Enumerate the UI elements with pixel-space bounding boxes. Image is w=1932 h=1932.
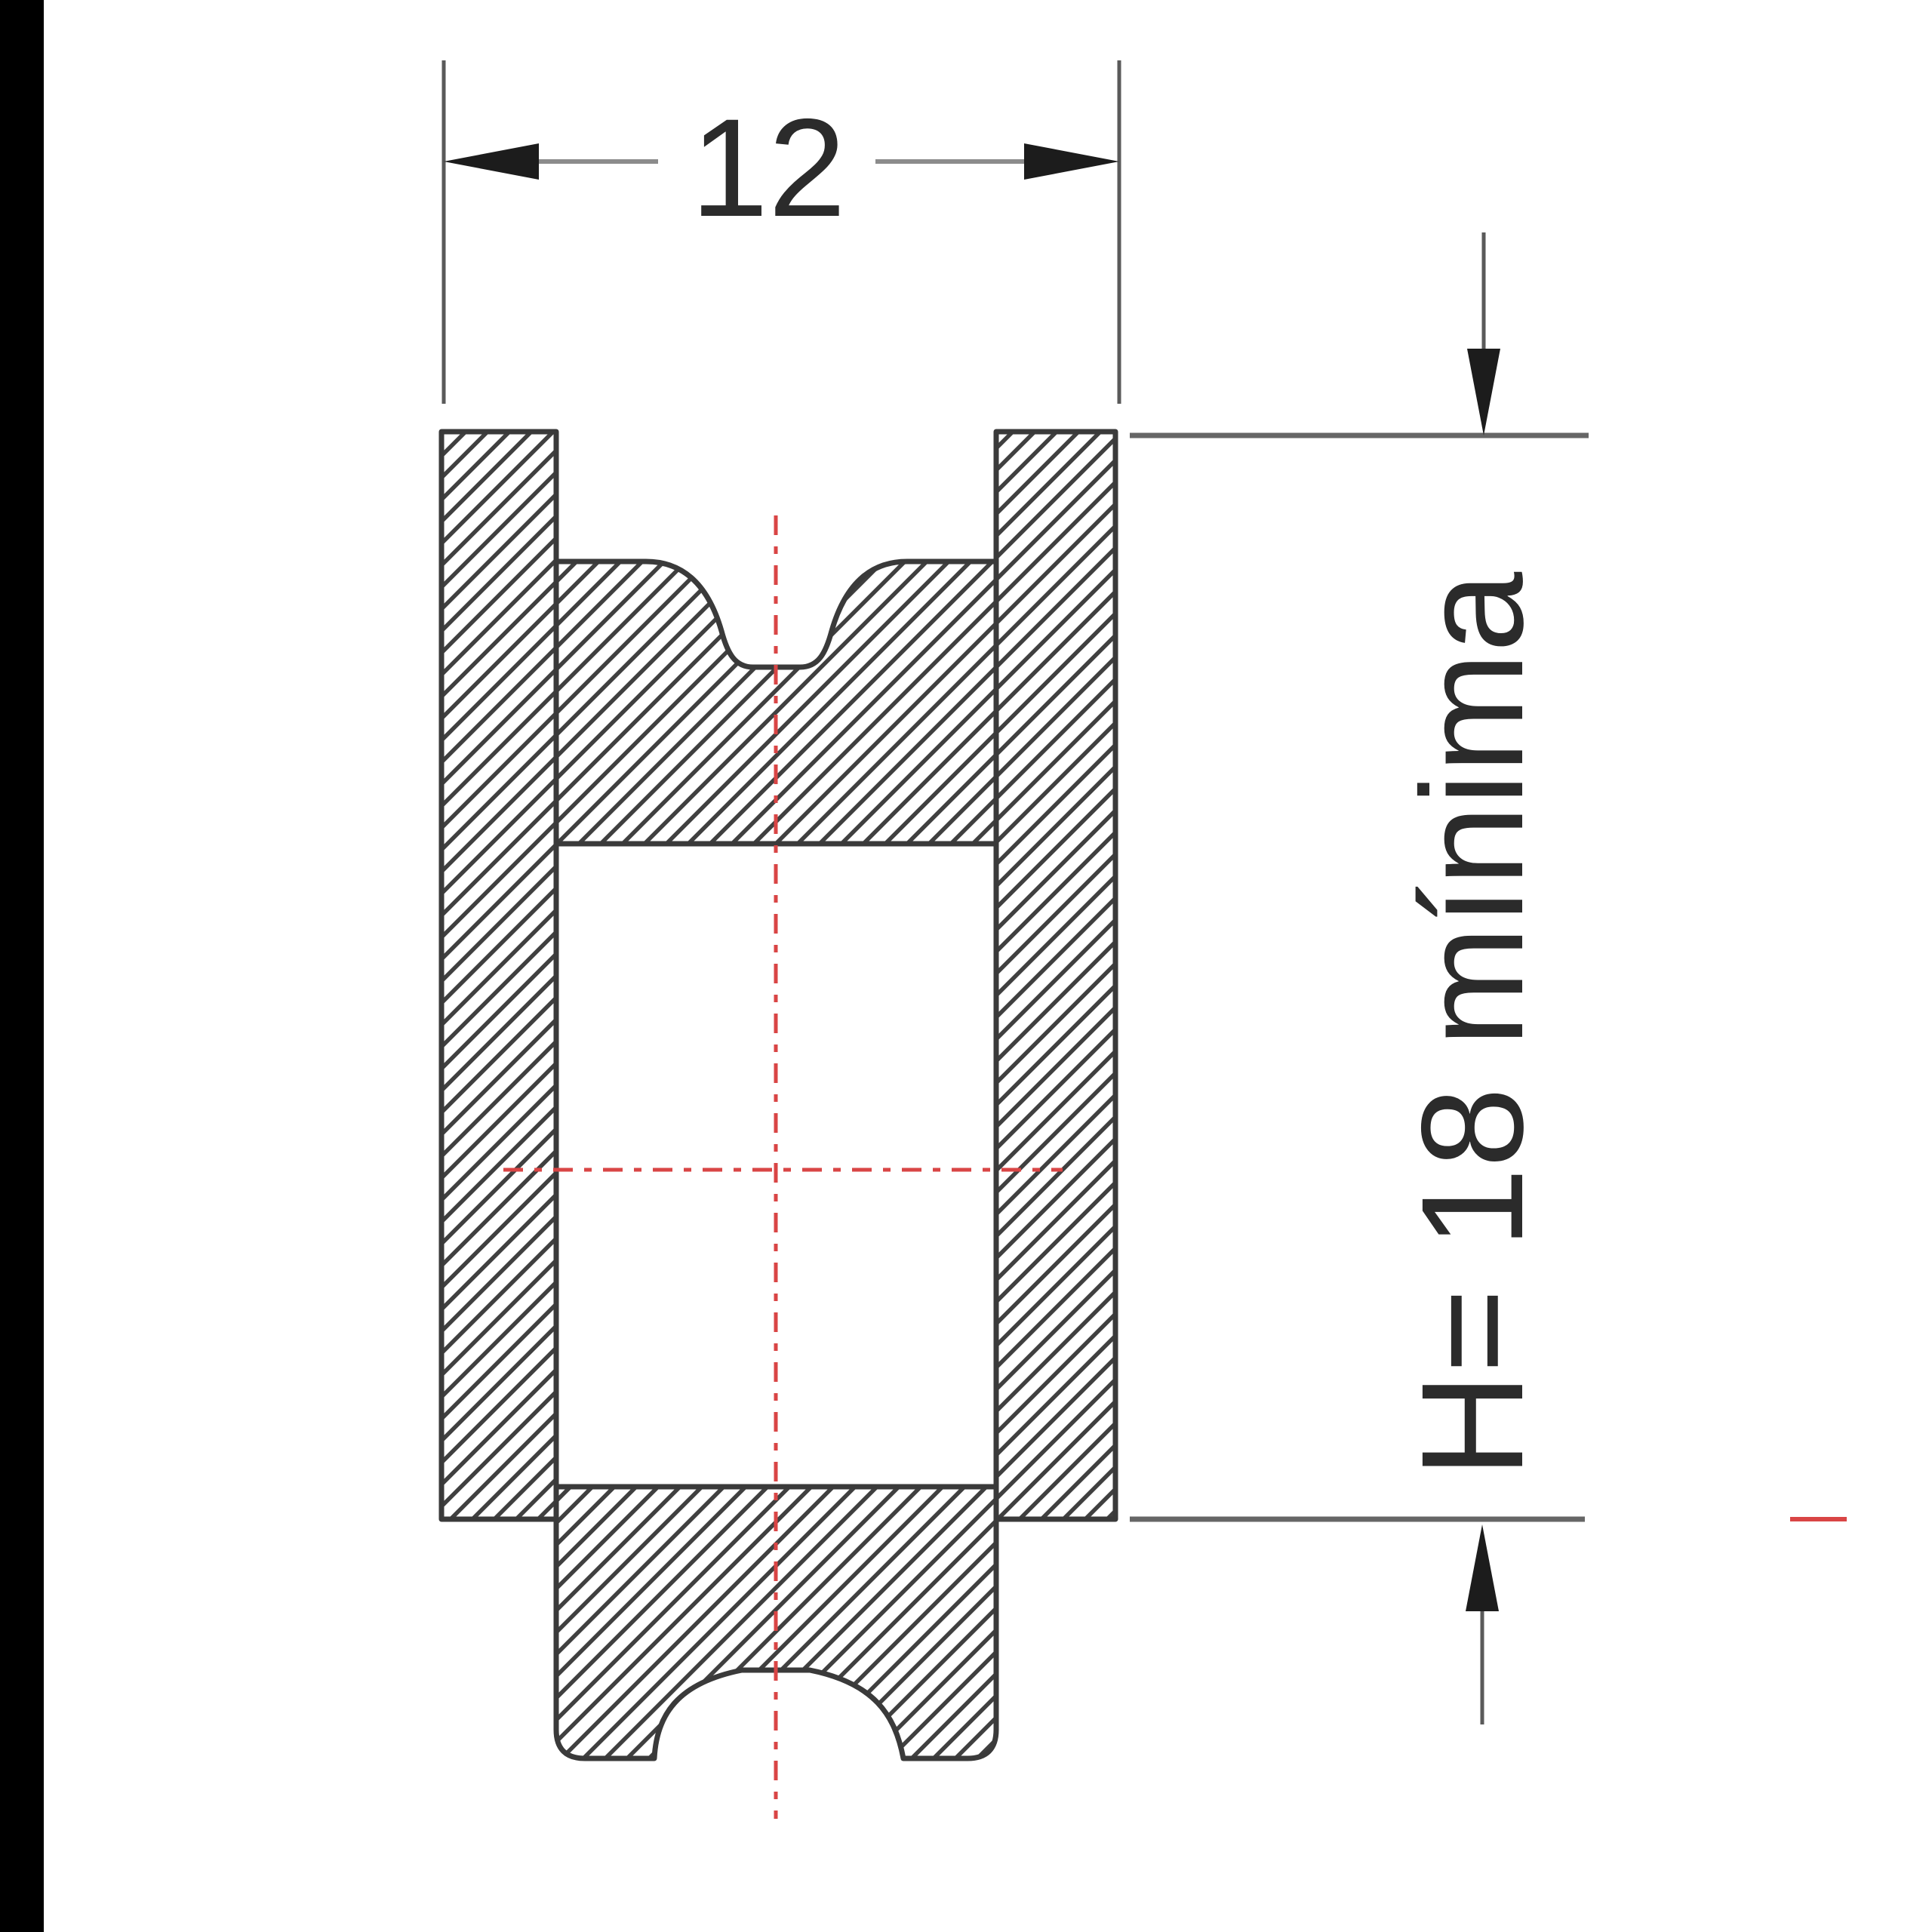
width-dimension-label: 12: [691, 91, 846, 246]
arrow-up-icon: [1466, 1524, 1499, 1611]
drawing-canvas: 12 H= 18 mínima: [0, 0, 1932, 1932]
arrow-right-icon: [1024, 143, 1119, 180]
arrow-left-icon: [444, 143, 539, 180]
right-flange: [996, 432, 1115, 1519]
pulley-section-drawing: 12 H= 18 mínima: [0, 0, 1932, 1932]
left-edge-bar: [0, 0, 44, 1932]
height-dimension: H= 18 mínima: [1130, 232, 1589, 1724]
arrow-down-icon: [1467, 349, 1500, 435]
left-flange: [441, 432, 556, 1519]
height-dimension-label: H= 18 mínima: [1391, 572, 1553, 1478]
pulley-part: [441, 432, 1115, 1758]
width-dimension: 12: [444, 60, 1119, 404]
